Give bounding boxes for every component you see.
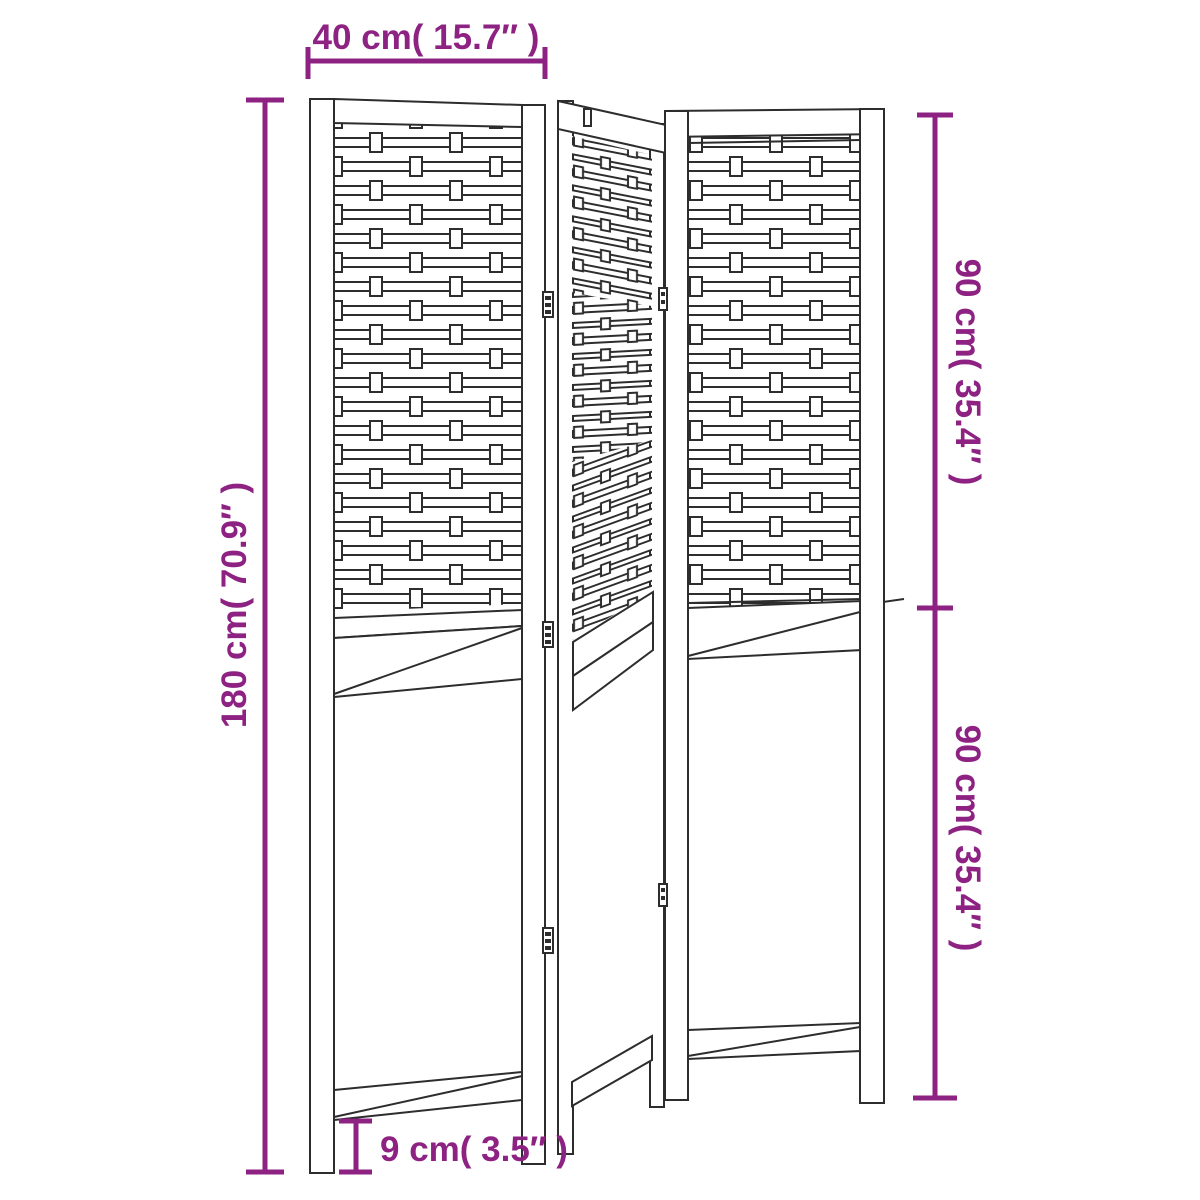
right-panel-weave (688, 132, 862, 608)
middle-panel (558, 101, 666, 1154)
middle-panel-left-stile (558, 101, 573, 1154)
product-dimension-diagram: 40 cm( 15.7″ ) 180 cm( 70.9″ ) 90 cm( 35… (0, 0, 1200, 1200)
leg-height-label: 9 cm( 3.5″ ) (380, 1130, 568, 1169)
hinge-icon (659, 884, 667, 906)
middle-panel-weave-band1 (572, 136, 652, 306)
right-panel (665, 109, 904, 1103)
left-height-label: 180 cm( 70.9″ ) (215, 482, 254, 728)
top-width-label: 40 cm( 15.7″ ) (313, 18, 540, 57)
right-lower-height-label: 90 cm( 35.4″ ) (948, 725, 987, 952)
room-divider-drawing: 40 cm( 15.7″ ) 180 cm( 70.9″ ) 90 cm( 35… (0, 0, 1200, 1200)
middle-panel-weave-band2 (572, 293, 652, 462)
right-panel-top-rail (665, 109, 884, 137)
left-panel-left-stile (310, 99, 334, 1173)
left-panel-weave (334, 108, 522, 622)
hinge-icon (543, 928, 553, 953)
right-upper-height-label: 90 cm( 35.4″ ) (948, 259, 987, 486)
left-panel-top-rail (334, 99, 522, 127)
hinge-icon (659, 288, 667, 310)
left-panel-right-stile (522, 105, 545, 1164)
hinge-icon (543, 622, 553, 647)
right-panel-left-stile (665, 111, 688, 1100)
leg-height-dimension (339, 1121, 372, 1172)
hinge-icon (543, 292, 553, 317)
left-panel (310, 99, 545, 1173)
right-panel-right-stile (860, 109, 884, 1103)
